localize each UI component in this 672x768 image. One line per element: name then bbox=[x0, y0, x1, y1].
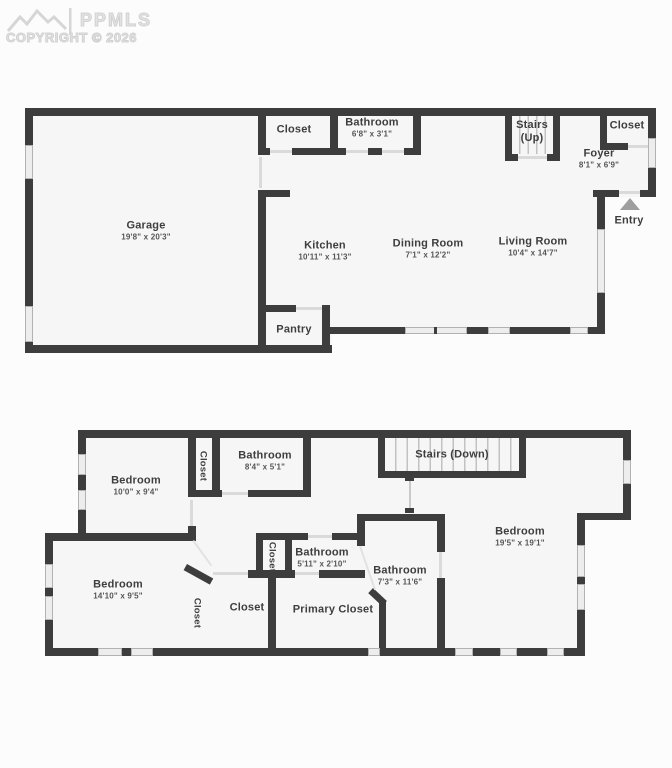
room-label-bedroom-top-left: Bedroom 10'0" x 9'4" bbox=[111, 475, 161, 498]
wall-segment bbox=[379, 600, 386, 648]
room-label-closet-top: Closet bbox=[277, 123, 312, 136]
window bbox=[78, 490, 86, 510]
room-label-bathroom-1f: Bathroom 6'8" x 3'1" bbox=[345, 117, 399, 140]
wall-segment bbox=[588, 327, 605, 334]
window bbox=[577, 584, 585, 610]
room-label-bathroom-73: Bathroom 7'3" x 11'6" bbox=[373, 565, 427, 588]
entry-arrow-icon bbox=[620, 198, 640, 210]
room-label-bathroom-511: Bathroom 5'11" x 2'10" bbox=[295, 547, 349, 570]
window bbox=[98, 648, 122, 656]
window bbox=[488, 327, 510, 334]
wall-segment bbox=[256, 533, 308, 540]
wall-segment bbox=[405, 508, 414, 513]
wall-segment bbox=[322, 305, 330, 353]
room-label-closet-mid: Closet bbox=[266, 542, 277, 572]
door-threshold bbox=[439, 552, 442, 578]
wall-segment bbox=[258, 108, 266, 153]
door-threshold bbox=[518, 156, 547, 159]
watermark-brand: PPMLS bbox=[80, 10, 152, 31]
wall-segment bbox=[188, 490, 222, 497]
door-threshold bbox=[296, 307, 322, 310]
door-threshold bbox=[190, 500, 193, 526]
wall-segment bbox=[517, 648, 547, 656]
wall-segment bbox=[378, 471, 526, 478]
room-label-bedroom-right: Bedroom 19'5" x 19'1" bbox=[495, 526, 545, 549]
door-threshold bbox=[382, 150, 404, 153]
room-label-pantry: Pantry bbox=[276, 323, 311, 336]
wall-segment bbox=[248, 490, 311, 497]
room-label-kitchen: Kitchen 10'11" x 11'3" bbox=[298, 240, 351, 263]
window bbox=[25, 145, 33, 179]
window bbox=[648, 138, 656, 168]
window bbox=[577, 545, 585, 577]
wall-segment bbox=[212, 430, 220, 497]
wall-segment bbox=[258, 190, 266, 353]
watermark-copyright: COPYRIGHT © 2026 bbox=[6, 30, 137, 45]
wall-segment bbox=[45, 648, 98, 656]
wall-segment bbox=[437, 514, 445, 552]
wall-segment bbox=[405, 476, 414, 481]
door-threshold bbox=[222, 492, 248, 495]
wall-segment bbox=[153, 648, 368, 656]
wall-segment bbox=[640, 190, 656, 197]
wall-segment bbox=[357, 514, 365, 546]
window bbox=[500, 648, 517, 656]
room-label-primary-closet: Primary Closet bbox=[293, 603, 373, 616]
floor-plan-canvas: PPMLS COPYRIGHT © 2026 Garage 19'8" x 20… bbox=[0, 0, 672, 768]
room-label-closet-lower: Closet bbox=[191, 598, 202, 628]
window bbox=[597, 229, 605, 293]
wall-segment bbox=[357, 514, 445, 521]
window bbox=[570, 327, 588, 334]
window bbox=[547, 648, 564, 656]
window bbox=[455, 648, 473, 656]
wall-segment bbox=[258, 190, 290, 197]
room-label-entry: Entry bbox=[614, 214, 643, 227]
wall-segment bbox=[303, 430, 311, 497]
door-threshold bbox=[213, 572, 248, 575]
wall-segment bbox=[322, 327, 405, 334]
door-threshold bbox=[295, 572, 319, 575]
room-label-bathroom-84: Bathroom 8'4" x 5'1" bbox=[238, 450, 292, 473]
wall-segment bbox=[467, 327, 488, 334]
wall-segment bbox=[473, 648, 500, 656]
wall-segment bbox=[510, 327, 570, 334]
wall-segment bbox=[368, 148, 382, 155]
wall-segment bbox=[338, 148, 346, 155]
wall-segment bbox=[577, 513, 631, 520]
wall-segment bbox=[505, 154, 518, 161]
room-label-dining-room: Dining Room 7'1" x 12'2" bbox=[393, 238, 464, 261]
window bbox=[131, 648, 153, 656]
window bbox=[45, 596, 53, 620]
wall-segment bbox=[292, 148, 338, 155]
window bbox=[623, 460, 631, 484]
wall-segment bbox=[332, 533, 358, 540]
room-label-stairs-up: Stairs (Up) bbox=[508, 119, 556, 145]
wall-segment bbox=[547, 154, 560, 161]
wall-segment bbox=[78, 430, 631, 438]
room-label-closet-room: Closet bbox=[230, 601, 265, 614]
wall-segment bbox=[188, 526, 196, 541]
door-threshold bbox=[628, 145, 648, 148]
room-label-foyer: Foyer 8'1" x 6'9" bbox=[579, 148, 619, 171]
wall-segment bbox=[268, 578, 276, 648]
wall-segment bbox=[122, 648, 131, 656]
room-label-living-room: Living Room 10'4" x 14'7" bbox=[499, 236, 568, 259]
wall-segment bbox=[25, 108, 656, 116]
door-threshold bbox=[270, 150, 292, 153]
wall-segment bbox=[78, 430, 86, 541]
wall-segment bbox=[188, 430, 196, 497]
wall-segment bbox=[258, 305, 296, 312]
window bbox=[368, 648, 380, 656]
room-label-garage: Garage 19'8" x 20'3" bbox=[121, 220, 171, 243]
door-threshold bbox=[308, 535, 332, 538]
window bbox=[45, 564, 53, 588]
wall-segment bbox=[45, 533, 53, 656]
door-threshold bbox=[259, 157, 262, 188]
room-label-stairs-down: Stairs (Down) bbox=[415, 448, 489, 461]
wall-segment bbox=[25, 345, 332, 353]
window bbox=[78, 454, 86, 475]
wall-segment bbox=[413, 108, 421, 155]
wall-segment bbox=[437, 578, 445, 656]
wall-segment bbox=[434, 327, 437, 334]
room-label-closet-right: Closet bbox=[610, 119, 645, 132]
room-label-bedroom-bottom-left: Bedroom 14'10" x 9'5" bbox=[93, 579, 143, 602]
stair-railing bbox=[409, 478, 411, 510]
wall-segment bbox=[258, 148, 270, 155]
window bbox=[25, 306, 33, 342]
watermark: PPMLS COPYRIGHT © 2026 bbox=[4, 4, 204, 49]
wall-segment bbox=[45, 533, 196, 541]
wall-segment bbox=[319, 570, 365, 578]
room-label-closet-upper: Closet bbox=[197, 451, 208, 481]
door-threshold bbox=[346, 150, 368, 153]
